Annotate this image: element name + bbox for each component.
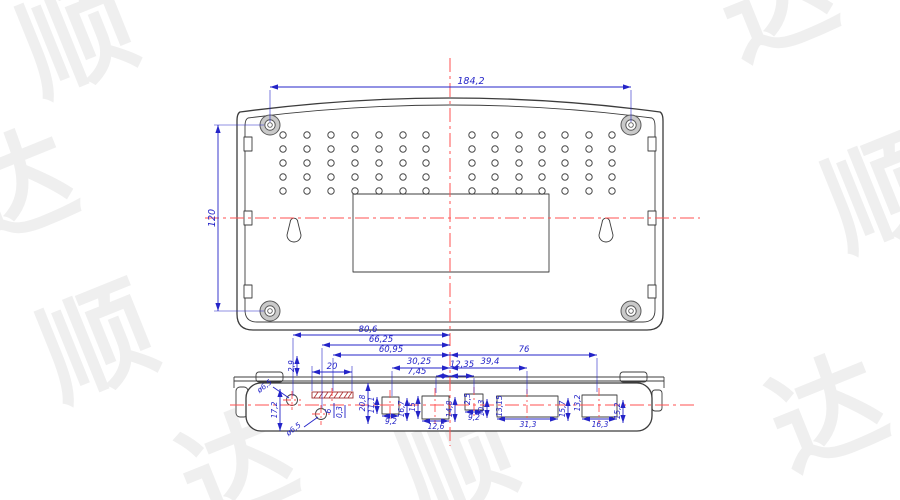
dim-80-6: 80,6: [359, 325, 379, 335]
vent-hole: [539, 132, 545, 138]
dim-2-5: 2,5: [463, 393, 472, 405]
dim-15-2: 15,2: [613, 402, 622, 419]
dim-20-8: 20,8: [358, 394, 367, 411]
cad-drawing: 顺 达 顺 达 达 顺 达 顺: [0, 0, 900, 500]
vent-hole: [539, 146, 545, 152]
dim-39-4: 39,4: [481, 357, 500, 367]
vent-hole: [492, 160, 498, 166]
vent-hole: [609, 174, 615, 180]
hatched-slot: [312, 392, 353, 398]
dim-6: 6: [324, 408, 333, 413]
vent-hole: [469, 160, 475, 166]
vent-hole: [539, 174, 545, 180]
side-tab: [244, 137, 252, 151]
dim-11-1: 11,1: [367, 397, 376, 414]
dim-66-25: 66,25: [369, 335, 393, 345]
dim-15: 15: [408, 402, 417, 412]
vent-hole: [516, 188, 522, 194]
dim-12-35: 12,35: [450, 360, 474, 370]
center-cutout: [353, 194, 549, 272]
vent-hole: [586, 174, 592, 180]
dim-top-width: 184,2: [457, 76, 484, 87]
vent-hole: [492, 188, 498, 194]
vent-hole: [586, 188, 592, 194]
dim-16-3: 16,3: [592, 420, 609, 429]
vent-hole: [352, 174, 358, 180]
vent-hole: [492, 174, 498, 180]
watermark-glyph: 顺: [21, 263, 174, 425]
dim-12-6: 12,6: [428, 422, 445, 431]
vent-hole: [400, 188, 406, 194]
vent-hole: [539, 188, 545, 194]
vent-holes: [280, 132, 615, 194]
vent-hole: [492, 146, 498, 152]
vent-hole: [352, 132, 358, 138]
dim-10-3: 10,3: [477, 399, 486, 416]
vent-hole: [469, 132, 475, 138]
watermark-glyph: 顺: [1, 0, 154, 120]
dim-17-2: 17,2: [270, 401, 279, 418]
dim-60-95: 60,95: [379, 345, 403, 355]
dim-side-height: 120: [207, 209, 218, 227]
vent-hole: [586, 132, 592, 138]
vent-hole: [516, 146, 522, 152]
vent-hole: [328, 160, 334, 166]
vent-hole: [304, 132, 310, 138]
vent-hole: [400, 174, 406, 180]
vent-hole: [352, 160, 358, 166]
vent-hole: [280, 132, 286, 138]
dim-16-7: 16,7: [397, 400, 406, 417]
vent-hole: [304, 146, 310, 152]
dim-31-3: 31,3: [520, 420, 537, 429]
vent-hole: [328, 174, 334, 180]
vent-hole: [469, 174, 475, 180]
vent-hole: [304, 160, 310, 166]
vent-hole: [400, 132, 406, 138]
vent-hole: [280, 160, 286, 166]
vent-hole: [352, 146, 358, 152]
vent-hole: [586, 160, 592, 166]
drawing-canvas: 顺 达 顺 达 达 顺 达 顺: [0, 0, 900, 500]
vent-hole: [562, 146, 568, 152]
vent-hole: [304, 174, 310, 180]
dim-9-2a: 9,2: [385, 417, 397, 426]
dim-76: 76: [519, 345, 530, 355]
screw-boss: [621, 301, 641, 321]
vent-hole: [328, 132, 334, 138]
vent-hole: [609, 146, 615, 152]
vent-hole: [586, 146, 592, 152]
vent-hole: [609, 132, 615, 138]
vent-hole: [423, 188, 429, 194]
vent-hole: [423, 132, 429, 138]
vent-hole: [376, 160, 382, 166]
vent-hole: [280, 188, 286, 194]
vent-hole: [328, 188, 334, 194]
vent-hole: [516, 160, 522, 166]
vent-hole: [280, 146, 286, 152]
vent-hole: [539, 160, 545, 166]
keyhole-slot: [287, 218, 301, 242]
vent-hole: [469, 146, 475, 152]
vent-hole: [469, 188, 475, 194]
vent-hole: [376, 188, 382, 194]
latch-right: [652, 390, 662, 411]
dim-13-2: 13,2: [573, 394, 582, 411]
vent-hole: [280, 174, 286, 180]
dim-7-45: 7,45: [408, 367, 427, 377]
vent-hole: [423, 160, 429, 166]
side-tab: [648, 285, 656, 298]
dim-30-25: 30,25: [407, 357, 431, 367]
dim-14-8: 14,8: [445, 400, 454, 417]
dim-15-7: 15,7: [558, 400, 567, 417]
vent-hole: [352, 188, 358, 194]
vent-hole: [400, 160, 406, 166]
vent-hole: [516, 132, 522, 138]
vent-hole: [609, 188, 615, 194]
cutout-d: [497, 396, 558, 417]
dim-2-9: 2,9: [287, 360, 296, 372]
dim-20: 20: [327, 362, 338, 372]
vent-hole: [423, 146, 429, 152]
vent-hole: [562, 174, 568, 180]
watermark-glyph: 顺: [806, 113, 900, 275]
watermark-glyph: 达: [701, 0, 854, 85]
vent-hole: [609, 160, 615, 166]
dim-0-3: 0,3: [335, 406, 344, 418]
vent-hole: [304, 188, 310, 194]
vent-hole: [376, 146, 382, 152]
vent-hole: [376, 132, 382, 138]
side-tab: [648, 137, 656, 151]
vent-hole: [423, 174, 429, 180]
vent-hole: [492, 132, 498, 138]
dim-13-15: 13,15: [495, 395, 504, 417]
vent-hole: [400, 146, 406, 152]
keyhole-slot: [599, 218, 613, 242]
vent-hole: [562, 188, 568, 194]
vent-hole: [328, 146, 334, 152]
vent-hole: [562, 160, 568, 166]
cutout-e: [582, 395, 617, 417]
watermark-glyph: 达: [0, 108, 94, 270]
watermark-glyph: 达: [751, 333, 900, 495]
vent-hole: [562, 132, 568, 138]
vent-hole: [516, 174, 522, 180]
vent-hole: [376, 174, 382, 180]
side-tab: [244, 285, 252, 298]
